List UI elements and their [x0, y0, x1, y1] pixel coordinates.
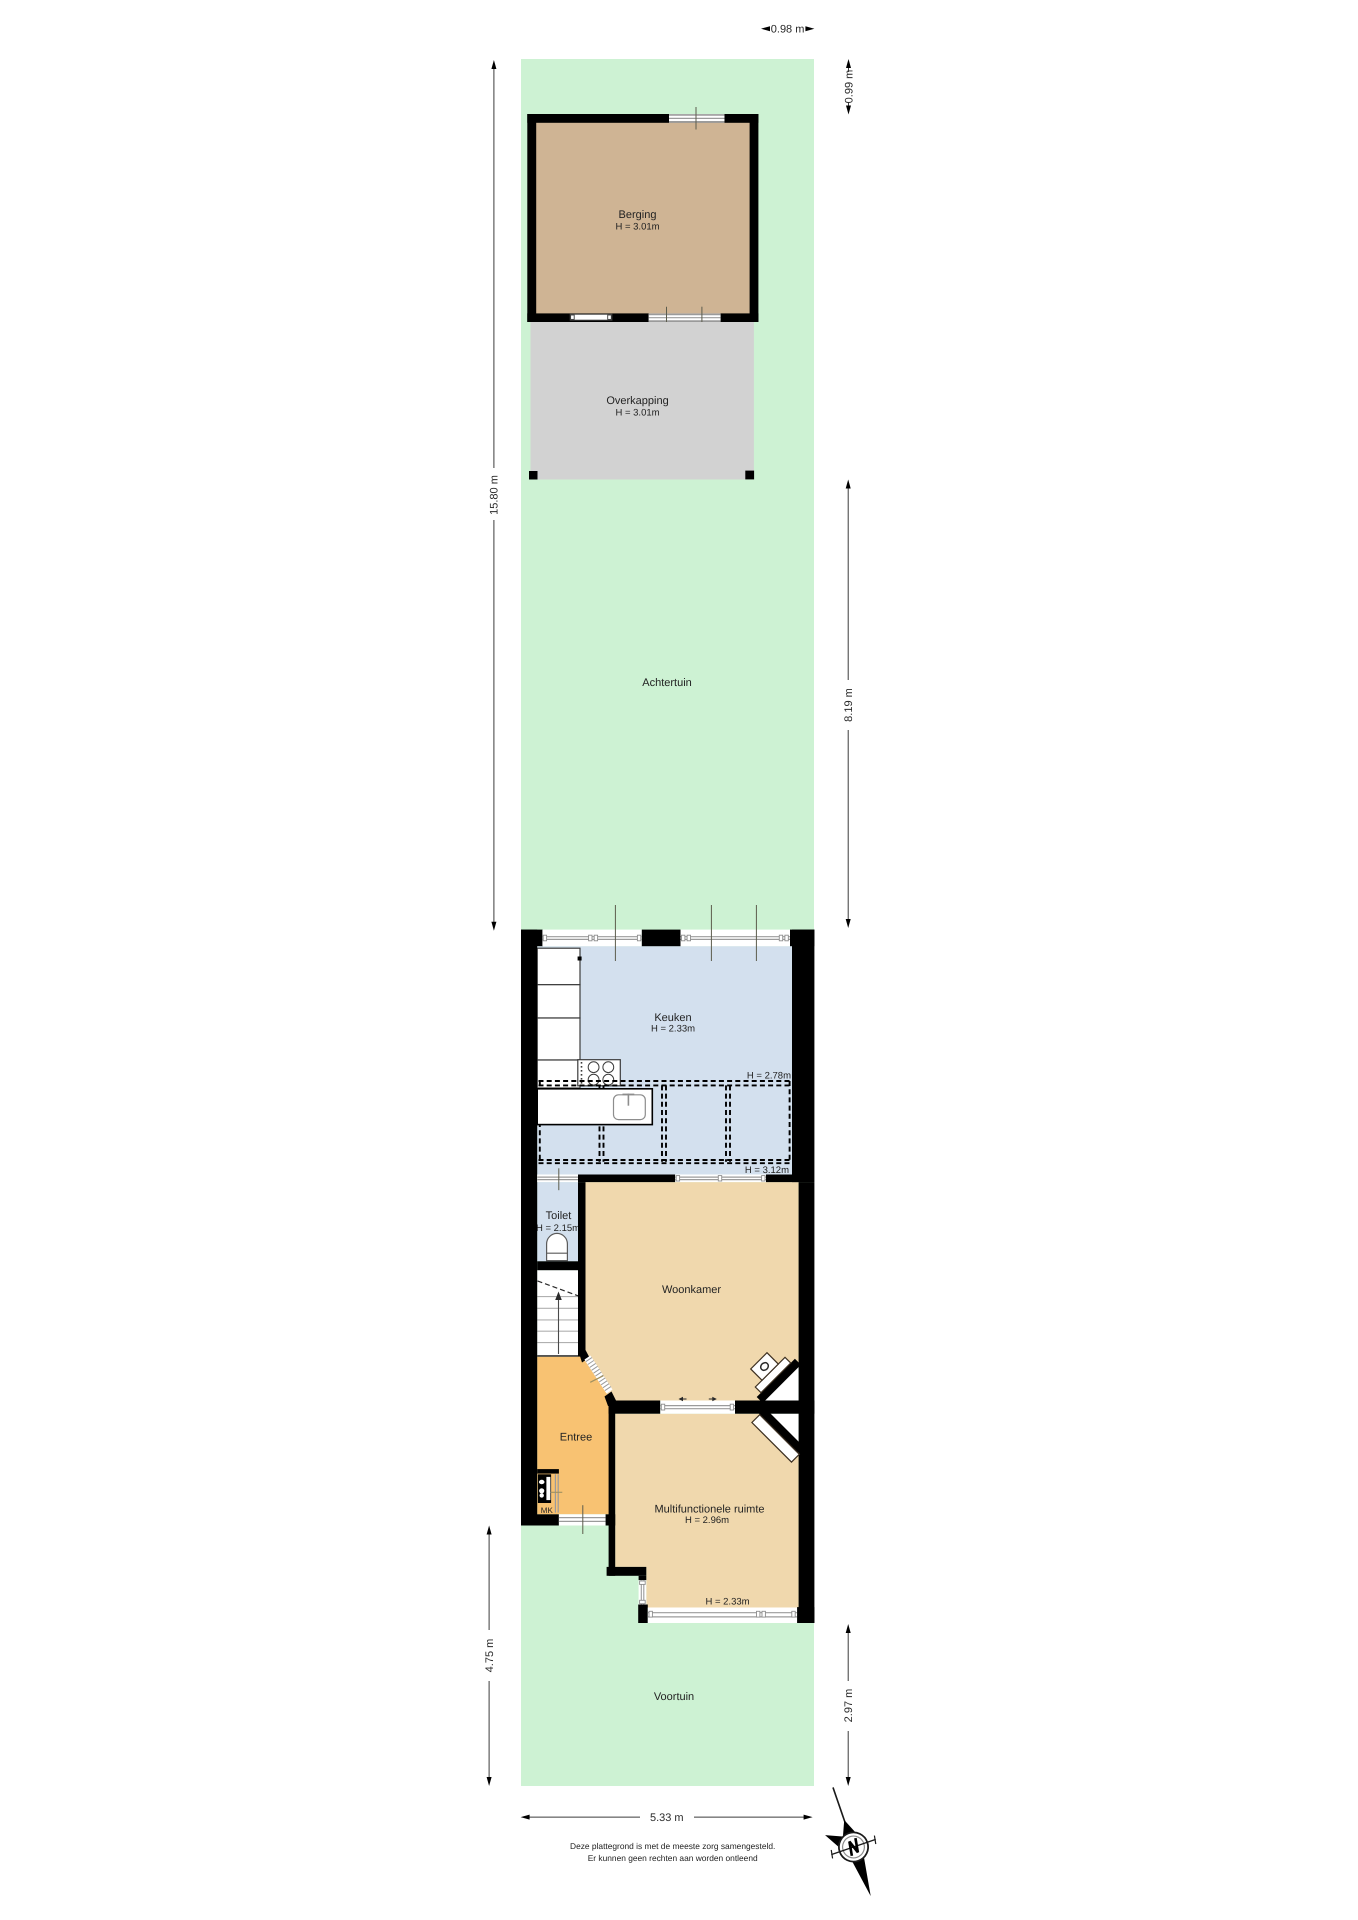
svg-text:Toilet: Toilet: [546, 1210, 572, 1222]
svg-text:H = 3.12m: H = 3.12m: [745, 1165, 789, 1176]
svg-text:Deze plattegrond is met de mee: Deze plattegrond is met de meeste zorg s…: [570, 1841, 775, 1851]
svg-text:Achtertuin: Achtertuin: [642, 677, 692, 689]
svg-text:H = 3.01m: H = 3.01m: [615, 408, 659, 419]
svg-text:Woonkamer: Woonkamer: [662, 1284, 721, 1296]
svg-text:H = 3.01m: H = 3.01m: [615, 222, 659, 233]
svg-text:2.97 m: 2.97 m: [843, 1689, 855, 1723]
svg-text:Berging: Berging: [619, 209, 657, 221]
svg-text:H = 2.78m: H = 2.78m: [747, 1071, 791, 1082]
svg-text:Er kunnen geen rechten aan wor: Er kunnen geen rechten aan worden ontlee…: [588, 1853, 758, 1863]
svg-text:Multifunctionele ruimte: Multifunctionele ruimte: [654, 1504, 764, 1516]
svg-text:Entree: Entree: [560, 1432, 592, 1444]
svg-text:Voortuin: Voortuin: [654, 1691, 694, 1703]
svg-text:0.99 m: 0.99 m: [843, 70, 855, 104]
svg-text:H = 2.15m: H = 2.15m: [536, 1223, 580, 1234]
svg-text:Keuken: Keuken: [654, 1012, 691, 1024]
svg-text:5.33 m: 5.33 m: [650, 1812, 684, 1824]
svg-text:H = 2.33m: H = 2.33m: [705, 1597, 749, 1608]
svg-text:H = 2.33m: H = 2.33m: [651, 1024, 695, 1035]
svg-text:8.19 m: 8.19 m: [843, 688, 855, 722]
svg-text:H = 2.96m: H = 2.96m: [685, 1515, 729, 1526]
svg-text:Overkapping: Overkapping: [606, 395, 668, 407]
svg-text:4.75 m: 4.75 m: [484, 1639, 496, 1673]
svg-text:0.98 m: 0.98 m: [771, 24, 805, 36]
svg-text:MK: MK: [541, 1506, 554, 1515]
svg-text:15.80 m: 15.80 m: [489, 475, 501, 515]
